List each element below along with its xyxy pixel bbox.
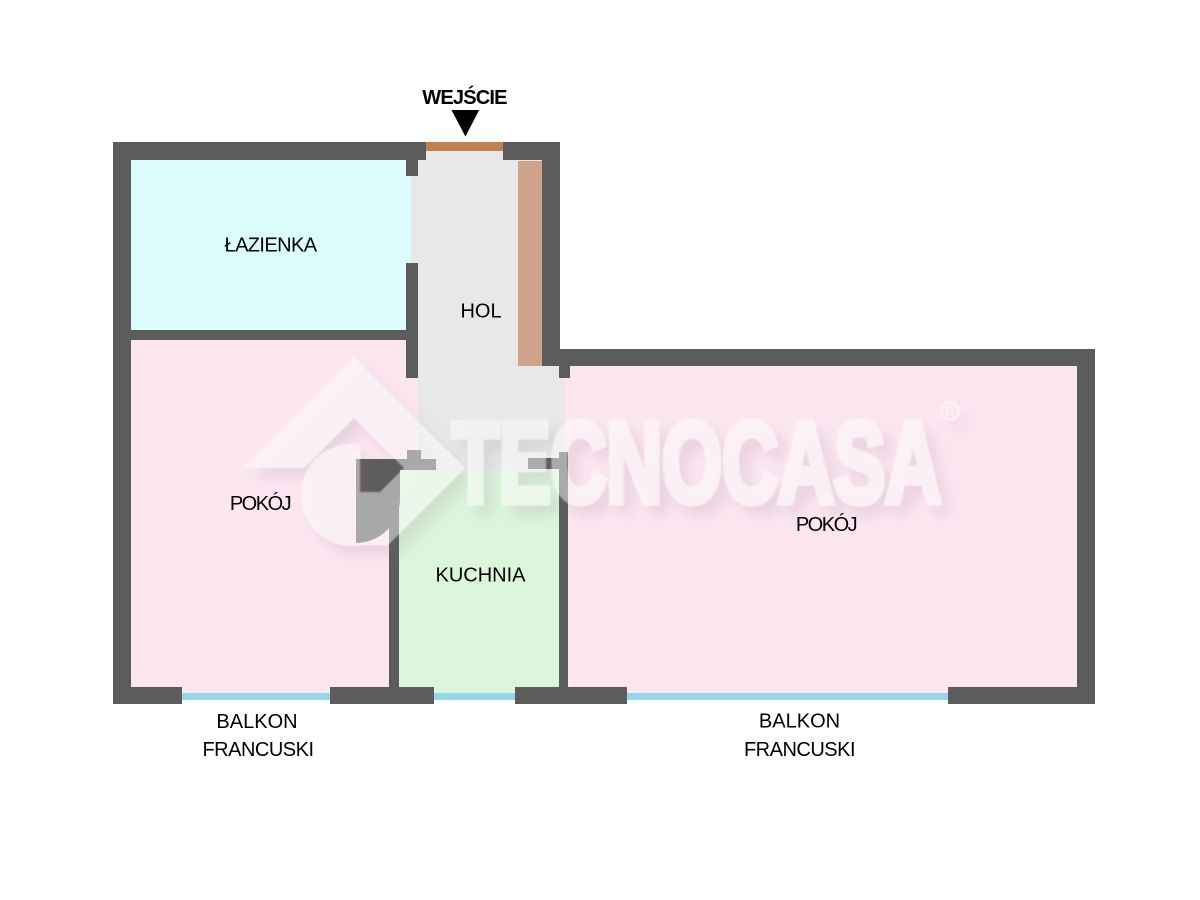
svg-text:R: R — [945, 404, 955, 419]
svg-text:KUCHNIA: KUCHNIA — [435, 565, 526, 587]
svg-text:HOL: HOL — [460, 301, 501, 323]
svg-text:FRANCUSKI: FRANCUSKI — [744, 739, 855, 761]
svg-text:WEJŚCIE: WEJŚCIE — [422, 85, 507, 109]
svg-text:ŁAZIENKA: ŁAZIENKA — [225, 235, 318, 257]
svg-text:POKÓJ: POKÓJ — [230, 492, 291, 515]
svg-text:BALKON: BALKON — [759, 711, 840, 733]
svg-text:FRANCUSKI: FRANCUSKI — [202, 739, 313, 761]
svg-text:POKÓJ: POKÓJ — [796, 513, 857, 536]
svg-text:TECNOCASA: TECNOCASA — [452, 400, 941, 527]
svg-text:BALKON: BALKON — [216, 711, 297, 733]
